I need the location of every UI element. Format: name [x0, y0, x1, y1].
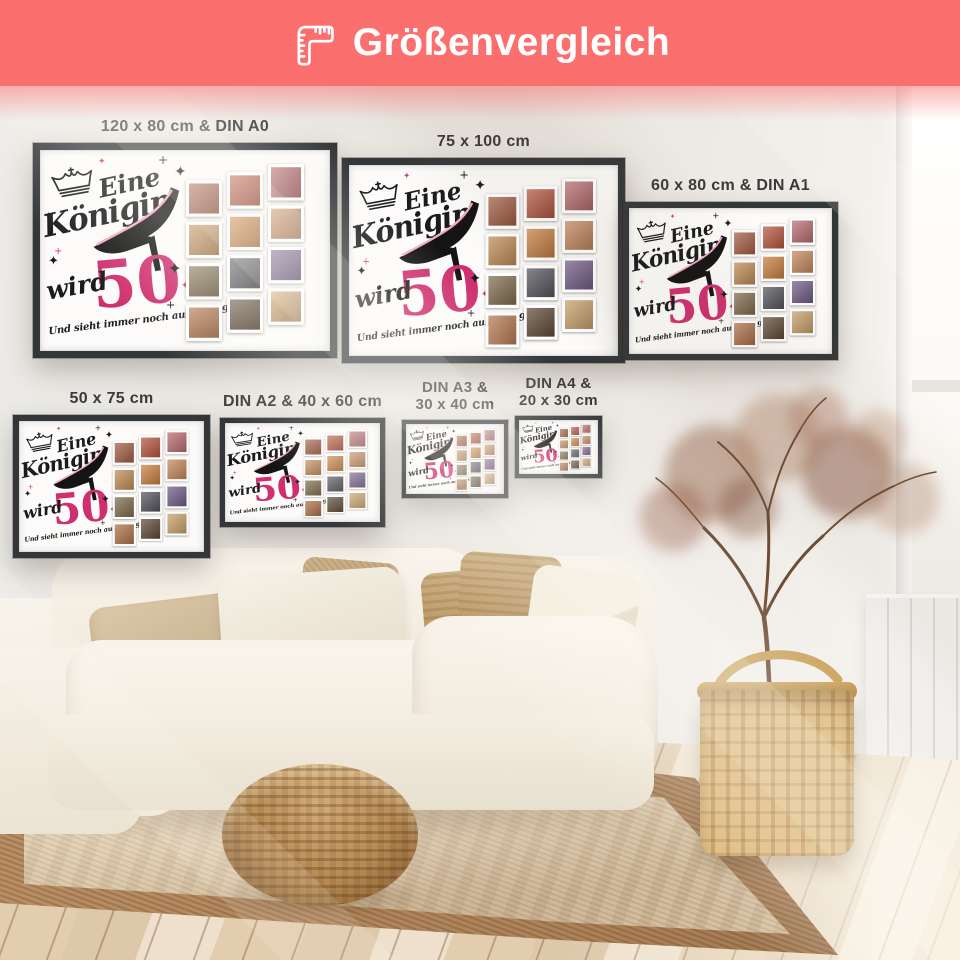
photo-collage: [113, 430, 190, 549]
collage-photo: [486, 194, 520, 229]
sparkle-icon: [166, 299, 175, 310]
collage-photo: [732, 291, 757, 318]
poster-artwork: Eine Königin 50 wird Und sieht immer noc…: [629, 208, 832, 354]
collage-photo: [761, 224, 786, 251]
photo-collage: [559, 424, 592, 473]
photo-collage: [486, 179, 598, 353]
framed-poster: 75 x 100 cm Eine Königin: [342, 158, 625, 363]
poster-paper: Eine Königin 50 wird Und sieht immer noc…: [406, 424, 504, 494]
collage-photo: [559, 439, 569, 449]
collage-photo: [186, 305, 222, 341]
collage-photo: [326, 434, 345, 452]
sparkle-icon: [670, 214, 675, 221]
collage-photo: [326, 496, 345, 514]
poster-wall: 120 x 80 cm & DIN A0 Eine Königin: [0, 0, 960, 960]
collage-photo: [559, 462, 569, 472]
sparkle-icon: [101, 494, 110, 505]
sparkle-icon: [48, 255, 59, 268]
collage-photo: [304, 459, 323, 477]
collage-photo: [486, 313, 520, 348]
folding-ruler-icon: [290, 20, 336, 66]
sparkle-icon: [520, 436, 523, 439]
sparkle-icon: [24, 490, 31, 499]
collage-photo: [570, 460, 580, 470]
collage-photo: [348, 471, 367, 489]
collage-photo: [524, 226, 558, 261]
sparkle-icon: [407, 445, 410, 449]
collage-photo: [456, 464, 468, 477]
collage-photo: [165, 430, 188, 454]
collage-photo: [732, 230, 757, 257]
poster-frame: Eine Königin 50 wird Und sieht immer noc…: [402, 420, 508, 498]
collage-photo: [348, 430, 367, 448]
poster-artwork: Eine Königin 50 wird Und sieht immer noc…: [349, 165, 618, 356]
framed-poster: DIN A4 & 20 x 30 cm Eine Königin: [515, 416, 602, 478]
collage-photo: [139, 490, 162, 514]
poster-artwork: Eine Königin 50 wird Und sieht immer noc…: [519, 420, 598, 474]
collage-photo: [304, 438, 323, 456]
sparkle-icon: [158, 154, 168, 166]
collage-photo: [486, 273, 520, 308]
poster-size-label: 120 x 80 cm & DIN A0: [101, 118, 269, 137]
collage-photo: [165, 457, 188, 481]
collage-photo: [456, 449, 468, 462]
poster-frame: Eine Königin 50 wird Und sieht immer noc…: [33, 143, 337, 358]
collage-photo: [326, 475, 345, 493]
sparkle-icon: [403, 173, 410, 182]
collage-photo: [304, 500, 323, 518]
sparkle-icon: [551, 421, 554, 424]
collage-photo: [484, 443, 496, 456]
collage-photo: [761, 315, 786, 342]
collage-photo: [348, 492, 367, 510]
collage-photo: [470, 475, 482, 488]
poster-size-label: 75 x 100 cm: [437, 133, 530, 152]
collage-photo: [113, 441, 136, 465]
sparkle-icon: [168, 261, 181, 277]
sparkle-icon: [229, 475, 235, 482]
poster-size-label: DIN A4 & 20 x 30 cm: [519, 375, 598, 410]
framed-poster: 50 x 75 cm Eine Königin: [13, 415, 210, 558]
photo-collage: [304, 430, 369, 520]
collage-photo: [761, 254, 786, 281]
collage-photo: [524, 265, 558, 300]
poster-artwork: Eine Königin 50 wird Und sieht immer noc…: [406, 424, 504, 494]
collage-photo: [268, 206, 304, 242]
collage-photo: [570, 448, 580, 458]
collage-photo: [113, 468, 136, 492]
collage-photo: [227, 214, 263, 250]
collage-photo: [227, 296, 263, 332]
sparkle-icon: [22, 461, 28, 468]
sparkle-icon: [174, 164, 187, 179]
header-banner: Größenvergleich: [0, 0, 960, 86]
poster-paper: Eine Königin 50 wird Und sieht immer noc…: [40, 150, 330, 351]
framed-poster: 60 x 80 cm & DIN A1 Eine Königin: [623, 202, 838, 360]
collage-photo: [524, 186, 558, 221]
poster-artwork: Eine Königin 50 wird Und sieht immer noc…: [225, 423, 380, 522]
sparkle-icon: [353, 223, 362, 234]
sparkle-icon: [554, 460, 557, 463]
sparkle-icon: [632, 252, 638, 260]
collage-photo: [732, 321, 757, 348]
collage-photo: [348, 451, 367, 469]
poster-paper: Eine Königin 50 wird Und sieht immer noc…: [349, 165, 618, 356]
collage-photo: [562, 218, 596, 253]
collage-photo: [456, 435, 468, 448]
collage-photo: [562, 297, 596, 332]
sparkle-icon: [554, 450, 558, 454]
collage-photo: [186, 180, 222, 216]
sparkle-icon: [719, 289, 728, 301]
collage-photo: [570, 437, 580, 447]
sparkle-icon: [635, 285, 643, 295]
framed-poster: 120 x 80 cm & DIN A0 Eine Königin: [33, 143, 337, 358]
framed-poster: DIN A3 & 30 x 40 cm Eine Königin: [402, 420, 508, 498]
sparkle-icon: [450, 463, 455, 469]
collage-photo: [790, 218, 815, 245]
sparkle-icon: [293, 497, 298, 503]
sparkle-icon: [288, 425, 293, 431]
collage-photo: [268, 164, 304, 200]
poster-frame: Eine Königin 50 wird Und sieht immer noc…: [515, 416, 602, 478]
poster-size-label: 60 x 80 cm & DIN A1: [651, 177, 810, 196]
collage-photo: [470, 461, 482, 474]
collage-photo: [761, 285, 786, 312]
photo-collage: [456, 429, 497, 493]
collage-photo: [562, 179, 596, 214]
sparkle-icon: [474, 179, 486, 193]
collage-photo: [186, 222, 222, 258]
sparkle-icon: [294, 478, 301, 486]
size-comparison-mockup: 120 x 80 cm & DIN A0 Eine Königin: [0, 0, 960, 960]
collage-photo: [732, 260, 757, 287]
page-title: Größenvergleich: [353, 21, 670, 65]
sparkle-icon: [469, 271, 482, 286]
sparkle-icon: [718, 317, 724, 325]
sparkle-icon: [95, 424, 101, 432]
collage-photo: [790, 249, 815, 276]
collage-photo: [326, 455, 345, 473]
sparkle-icon: [535, 422, 537, 424]
poster-artwork: Eine Königin 50 wird Und sieht immer noc…: [19, 421, 204, 552]
collage-photo: [581, 424, 591, 434]
sparkle-icon: [449, 476, 452, 480]
sparkle-icon: [459, 169, 468, 181]
poster-paper: Eine Königin 50 wird Und sieht immer noc…: [629, 208, 832, 354]
poster-paper: Eine Königin 50 wird Und sieht immer noc…: [19, 421, 204, 552]
sparkle-icon: [44, 211, 53, 222]
framed-poster: DIN A2 & 40 x 60 cm Eine Königin: [220, 418, 385, 527]
collage-photo: [570, 426, 580, 436]
collage-photo: [790, 279, 815, 306]
collage-photo: [581, 446, 591, 456]
collage-photo: [186, 263, 222, 299]
collage-photo: [139, 436, 162, 460]
collage-photo: [581, 435, 591, 445]
poster-size-label: 50 x 75 cm: [70, 390, 154, 409]
sparkle-icon: [446, 425, 449, 429]
collage-photo: [165, 512, 188, 536]
collage-photo: [524, 305, 558, 340]
collage-photo: [227, 255, 263, 291]
sparkle-icon: [467, 308, 476, 319]
sparkle-icon: [256, 427, 260, 432]
collage-photo: [562, 258, 596, 293]
collage-photo: [227, 172, 263, 208]
collage-photo: [470, 432, 482, 445]
poster-artwork: Eine Königin 50 wird Und sieht immer noc…: [40, 150, 328, 350]
collage-photo: [559, 428, 569, 438]
poster-frame: Eine Königin 50 wird Und sieht immer noc…: [342, 158, 625, 363]
poster-frame: Eine Königin 50 wird Und sieht immer noc…: [13, 415, 210, 558]
poster-frame: Eine Königin 50 wird Und sieht immer noc…: [220, 418, 385, 527]
photo-collage: [732, 218, 817, 351]
sparkle-icon: [409, 461, 413, 466]
collage-photo: [139, 463, 162, 487]
collage-photo: [113, 495, 136, 519]
collage-photo: [268, 247, 304, 283]
sparkle-icon: [356, 265, 366, 278]
collage-photo: [581, 457, 591, 467]
collage-photo: [484, 429, 496, 442]
photo-collage: [186, 164, 306, 346]
sparkle-icon: [227, 453, 232, 459]
collage-photo: [559, 451, 569, 461]
poster-paper: Eine Königin 50 wird Und sieht immer noc…: [225, 423, 380, 522]
sparkle-icon: [100, 519, 106, 526]
poster-paper: Eine Königin 50 wird Und sieht immer noc…: [519, 420, 598, 474]
collage-photo: [304, 479, 323, 497]
collage-photo: [484, 472, 496, 485]
collage-photo: [268, 288, 304, 324]
collage-photo: [456, 478, 468, 491]
sparkle-icon: [98, 158, 106, 167]
sparkle-icon: [712, 211, 719, 220]
collage-photo: [484, 458, 496, 471]
collage-photo: [113, 522, 136, 546]
collage-photo: [165, 485, 188, 509]
poster-frame: Eine Königin 50 wird Und sieht immer noc…: [623, 202, 838, 360]
poster-size-label: DIN A3 & 30 x 40 cm: [416, 379, 495, 414]
collage-photo: [139, 517, 162, 541]
collage-photo: [470, 446, 482, 459]
sparkle-icon: [521, 448, 524, 452]
poster-size-label: DIN A2 & 40 x 60 cm: [223, 393, 382, 412]
sparkle-icon: [56, 426, 61, 432]
collage-photo: [790, 309, 815, 336]
sparkle-icon: [426, 427, 429, 430]
collage-photo: [486, 234, 520, 269]
